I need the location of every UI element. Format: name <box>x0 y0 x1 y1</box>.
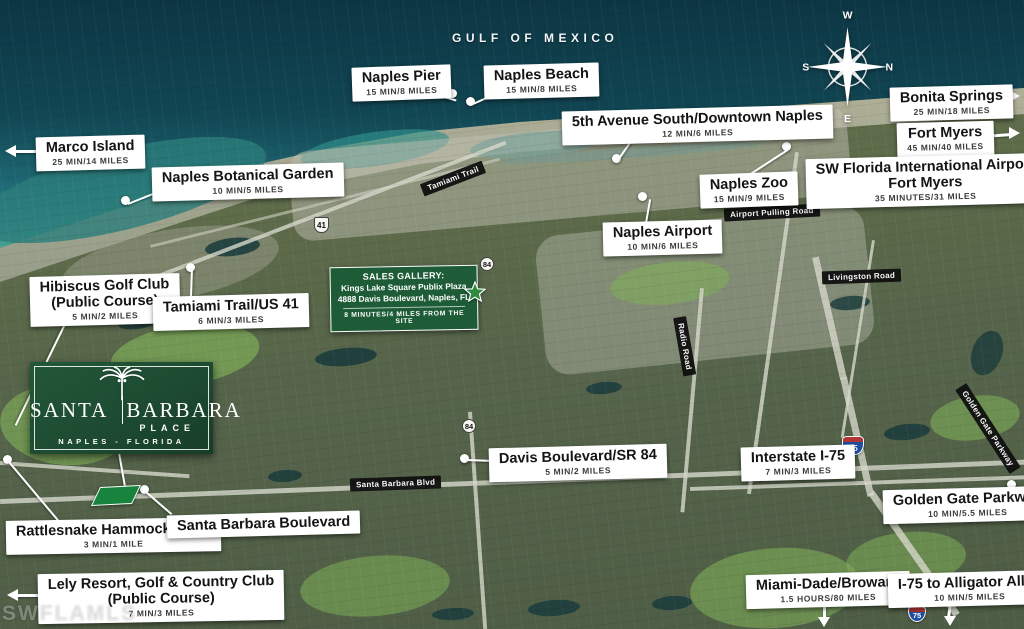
logo-wordmark: SANTA BARBARA <box>30 398 213 423</box>
sales-gallery-star-icon <box>464 281 486 303</box>
compass-left: S <box>802 63 809 74</box>
sales-gallery-box: SALES GALLERY: Kings Lake Square Publix … <box>329 265 478 333</box>
label-interstate-75: Interstate I-75 7 MIN/3 MILES <box>741 445 856 482</box>
poi-sub: 6 MIN/3 MILES <box>163 313 299 327</box>
label-naples-zoo: Naples Zoo 15 MIN/9 MILES <box>699 171 798 209</box>
label-fort-myers: Fort Myers 45 MIN/40 MILES <box>897 121 994 158</box>
poi-title: Golden Gate Parkway <box>893 489 1024 509</box>
divider <box>343 306 464 309</box>
poi-sub: 45 MIN/40 MILES <box>907 141 984 153</box>
label-santa-barbara-blvd: Santa Barbara Boulevard <box>167 510 361 538</box>
label-davis-blvd: Davis Boulevard/SR 84 5 MIN/2 MILES <box>489 444 668 483</box>
poi-title2: (Public Course) <box>40 293 170 313</box>
santa-barbara-place-logo: SANTA BARBARA PLACE NAPLES - FLORIDA <box>30 362 213 454</box>
poi-sub: 15 MIN/8 MILES <box>362 85 441 98</box>
site-parcel <box>91 485 141 506</box>
poi-sub: 15 MIN/8 MILES <box>494 83 589 95</box>
label-marco-island: Marco Island 25 MIN/14 MILES <box>36 135 145 172</box>
shield-number: 75 <box>913 612 921 622</box>
lake <box>268 469 303 483</box>
label-naples-airport: Naples Airport 10 MIN/6 MILES <box>603 219 723 256</box>
watermark: SWFLAMLS <box>2 602 137 626</box>
poi-sub: 25 MIN/18 MILES <box>900 105 1003 118</box>
compass-bottom: E <box>844 114 851 124</box>
i75-shield: 75 <box>908 606 926 622</box>
shield-number: 84 <box>483 260 491 269</box>
arrow-down-icon <box>944 616 956 626</box>
sr84-shield: 84 <box>462 419 476 433</box>
road-tag-livingston: Livingston Road <box>822 269 902 285</box>
poi-title: Fort Myers <box>907 124 984 142</box>
label-alligator-alley: I-75 to Alligator Alley 10 MIN/5 MILES <box>888 570 1024 608</box>
lake <box>652 595 693 612</box>
poi-title: Naples Zoo <box>710 175 789 194</box>
gulf-of-mexico-label: GULF OF MEXICO <box>452 31 618 45</box>
lake <box>528 598 581 618</box>
label-miami-dade: Miami-Dade/Broward 1.5 HOURS/80 MILES <box>746 571 911 610</box>
leader-dot <box>638 192 647 201</box>
label-bonita-springs: Bonita Springs 25 MIN/18 MILES <box>890 84 1014 121</box>
lake <box>883 422 930 443</box>
poi-sub: 15 MIN/9 MILES <box>710 192 788 205</box>
logo-place: PLACE <box>122 423 214 433</box>
arrow-down-icon <box>818 617 830 627</box>
arrow-right-icon <box>1009 127 1020 139</box>
lake <box>586 380 623 395</box>
road-santa-barbara-blvd <box>468 412 487 629</box>
compass-top: W <box>843 10 853 21</box>
poi-sub: 25 MIN/14 MILES <box>46 155 135 167</box>
poi-title: Naples Pier <box>362 68 442 87</box>
lake <box>432 607 475 621</box>
poi-title: I-75 to Alligator Alley <box>898 573 1024 593</box>
lake <box>965 326 1009 379</box>
poi-sub: 5 MIN/2 MILES <box>40 310 170 323</box>
logo-word-left: SANTA <box>30 398 117 423</box>
us41-shield: 41 <box>314 217 329 233</box>
poi-title: Naples Airport <box>613 223 713 242</box>
label-sw-intl-airport: SW Florida International Airport Fort My… <box>805 153 1024 210</box>
aerial-map: GULF OF MEXICO W N S E <box>0 0 1024 629</box>
compass-right: N <box>886 63 894 74</box>
poi-title: Bonita Springs <box>900 88 1004 107</box>
poi-title: Interstate I-75 <box>751 448 846 467</box>
poi-title: Santa Barbara Boulevard <box>177 514 351 535</box>
label-naples-pier: Naples Pier 15 MIN/8 MILES <box>351 64 451 102</box>
road-tag-santa-barbara: Santa Barbara Blvd <box>350 475 442 491</box>
arrow-left-icon <box>7 589 18 601</box>
road-rattlesnake <box>0 461 190 478</box>
logo-city: NAPLES - FLORIDA <box>30 437 213 446</box>
poi-title: Marco Island <box>46 138 135 157</box>
sr84-shield: 84 <box>480 257 494 271</box>
label-golden-gate-pkwy: Golden Gate Parkway 10 MIN/5.5 MILES <box>883 486 1024 525</box>
logo-word-right: BARBARA <box>117 398 242 423</box>
poi-title: Naples Beach <box>494 66 590 85</box>
label-naples-beach: Naples Beach 15 MIN/8 MILES <box>484 62 600 99</box>
poi-sub: 3 MIN/1 MILE <box>16 538 211 551</box>
poi-sub: 7 MIN/3 MILES <box>751 465 846 477</box>
sales-gallery-note: 8 MINUTES/4 MILES FROM THE SITE <box>335 310 473 326</box>
label-botanical-garden: Naples Botanical Garden 10 MIN/5 MILES <box>152 162 344 201</box>
leader-line <box>8 461 61 524</box>
shield-number: 84 <box>465 422 473 431</box>
shield-number: 41 <box>317 221 326 230</box>
poi-sub: 10 MIN/6 MILES <box>613 240 713 253</box>
sales-gallery-line: 4888 Davis Boulevard, Naples, FL <box>335 292 473 304</box>
arrow-left-icon <box>5 145 16 157</box>
label-tamiami-trail: Tamiami Trail/US 41 6 MIN/3 MILES <box>153 293 310 331</box>
golf-course <box>298 550 453 623</box>
lake <box>314 345 377 368</box>
